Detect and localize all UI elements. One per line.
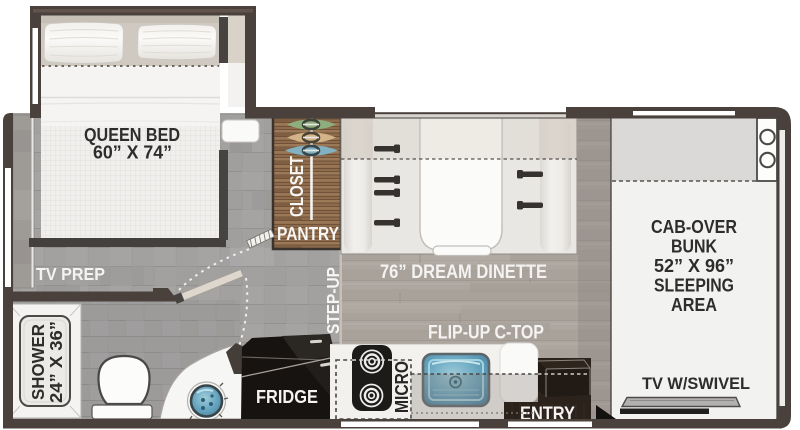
svg-text:TV W/SWIVEL: TV W/SWIVEL [642, 374, 750, 393]
svg-text:SHOWER: SHOWER [28, 324, 48, 400]
svg-text:76” DREAM DINETTE: 76” DREAM DINETTE [380, 262, 547, 283]
svg-text:FLIP-UP C-TOP: FLIP-UP C-TOP [428, 323, 544, 344]
svg-text:MICRO: MICRO [391, 361, 412, 413]
svg-text:24” X 36”: 24” X 36” [46, 321, 66, 403]
svg-text:CAB-OVER: CAB-OVER [651, 216, 737, 237]
svg-text:SLEEPING: SLEEPING [654, 275, 734, 296]
svg-text:FRIDGE: FRIDGE [256, 387, 318, 407]
svg-text:AREA: AREA [671, 294, 717, 315]
svg-text:BUNK: BUNK [671, 236, 718, 257]
svg-text:TV PREP: TV PREP [36, 264, 105, 284]
svg-text:PANTRY: PANTRY [277, 224, 339, 244]
svg-text:STEP-UP: STEP-UP [323, 267, 343, 334]
svg-text:60” X 74”: 60” X 74” [93, 143, 172, 163]
svg-text:CLOSET: CLOSET [286, 155, 307, 217]
svg-text:52” X 96”: 52” X 96” [654, 255, 734, 276]
